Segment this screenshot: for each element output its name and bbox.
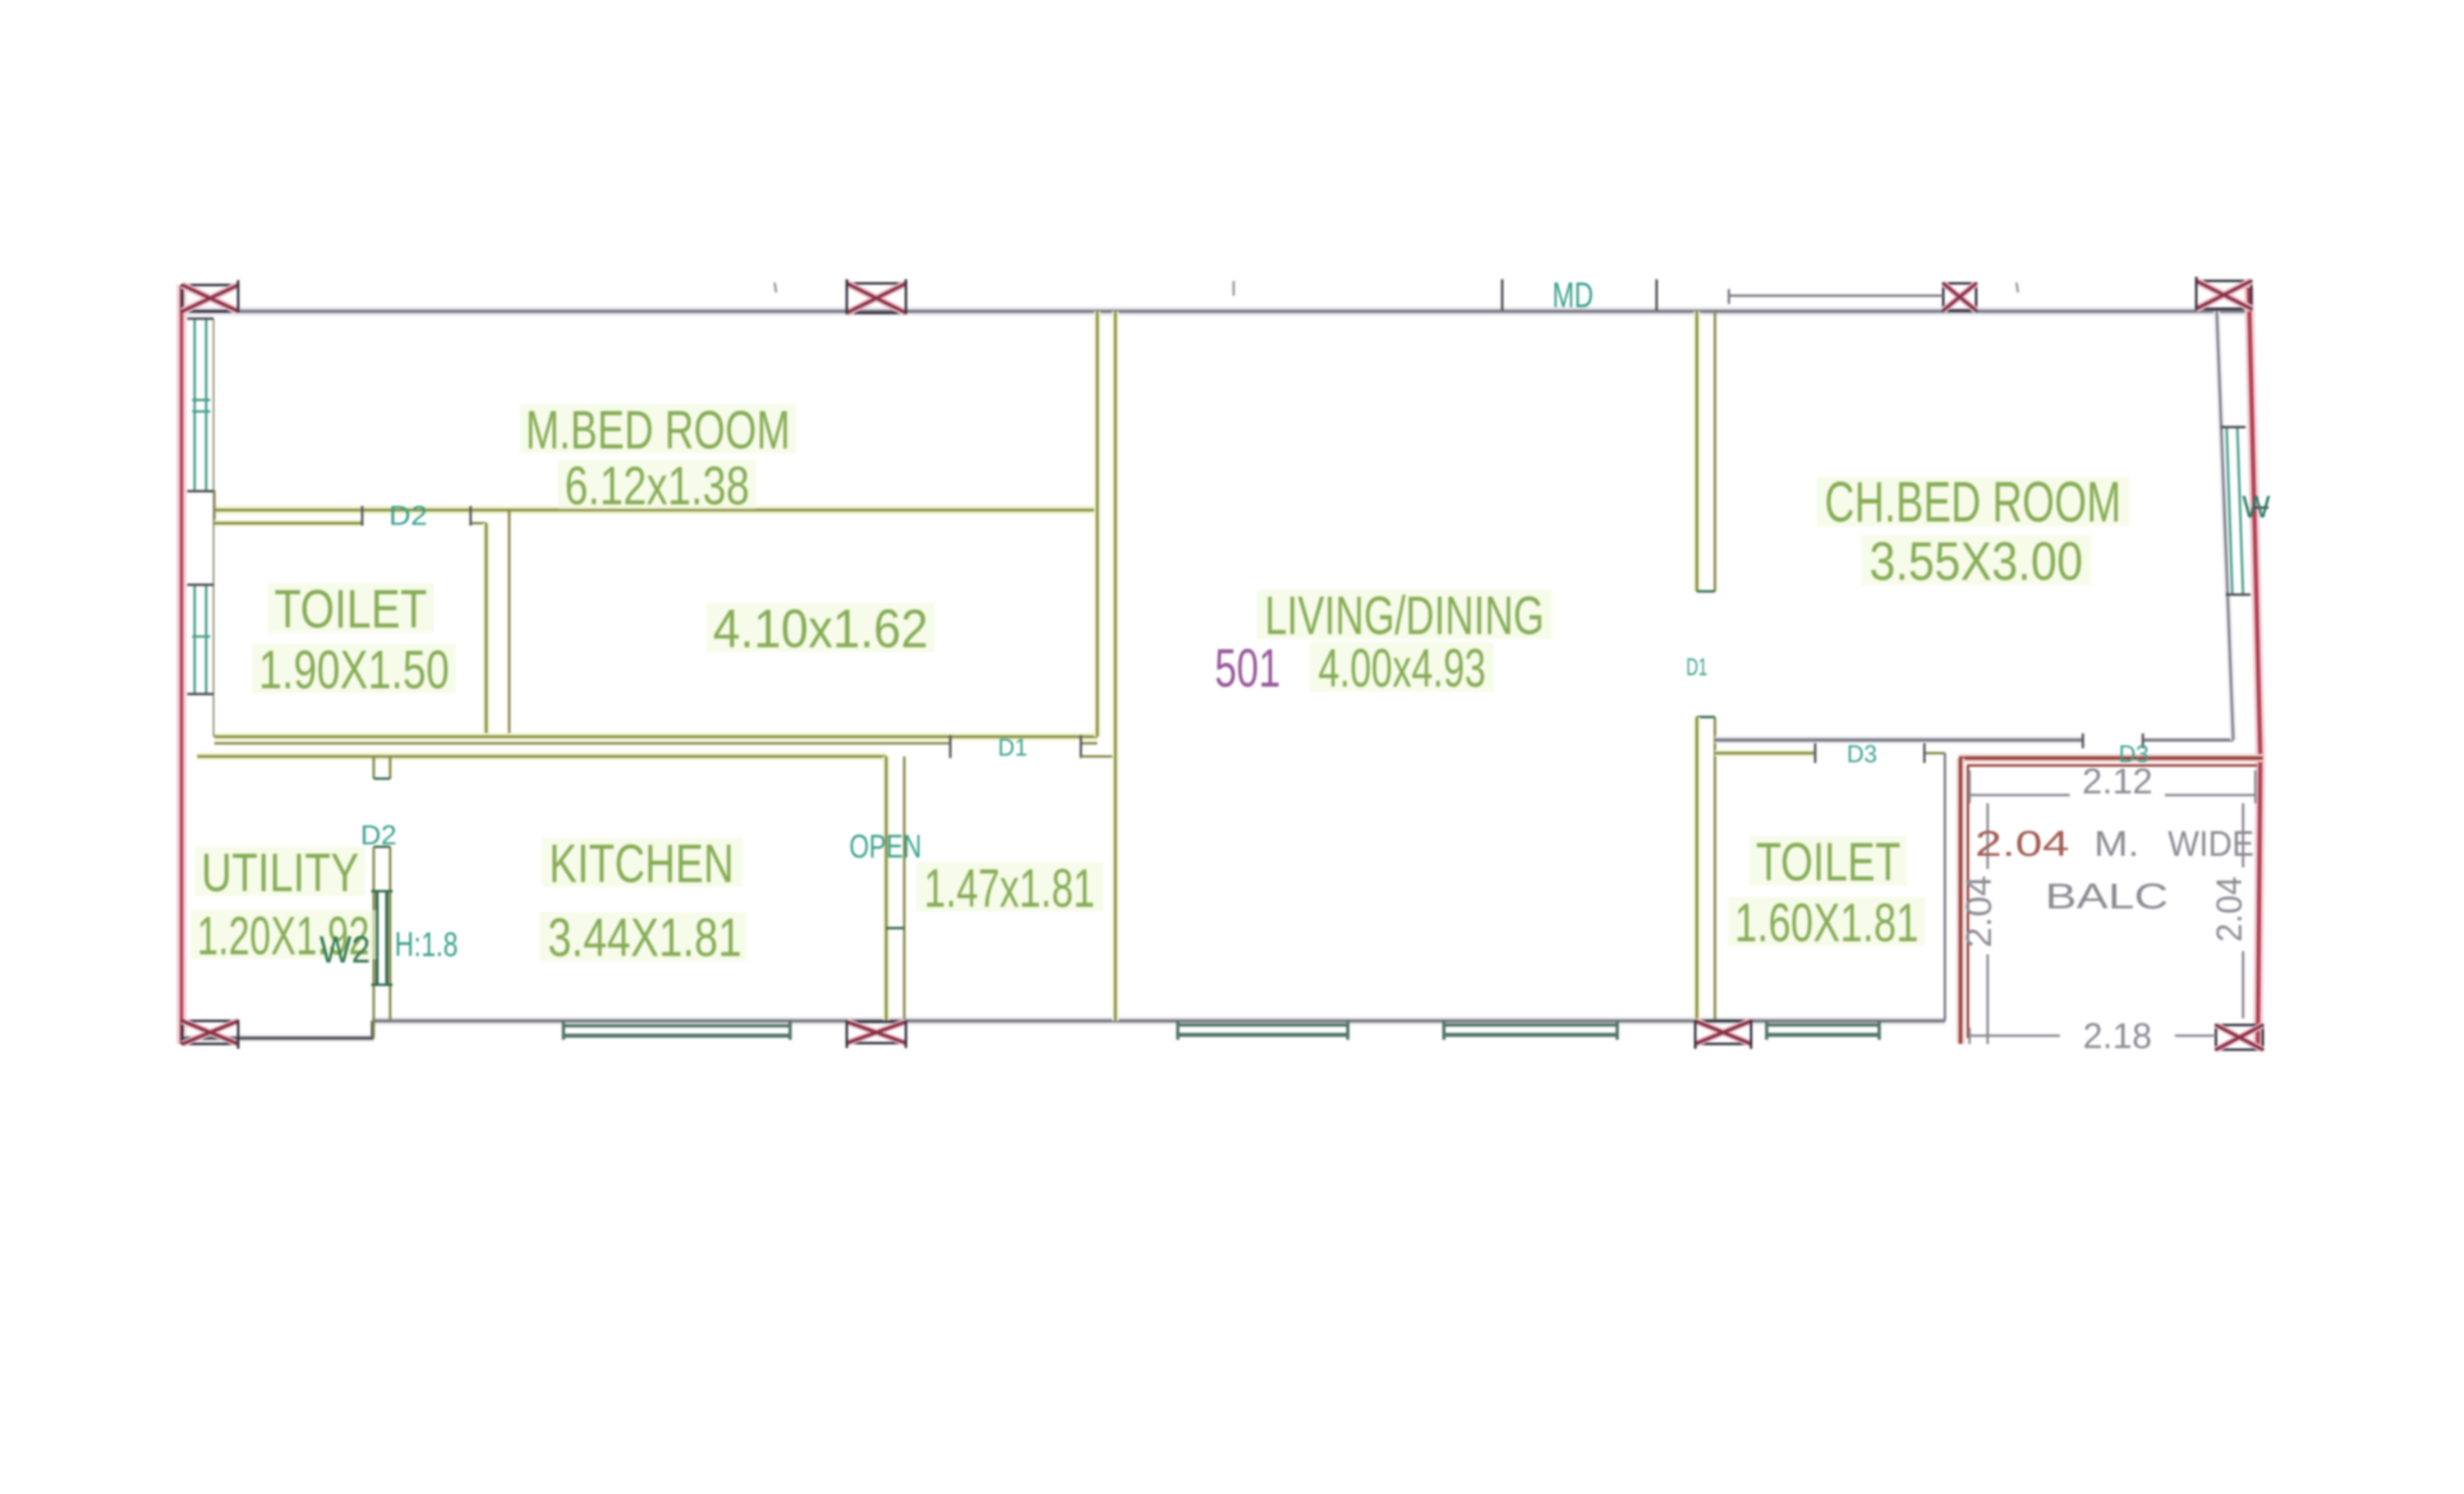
- svg-text:KITCHEN: KITCHEN: [549, 833, 734, 894]
- svg-text:M.BED ROOM: M.BED ROOM: [526, 399, 790, 460]
- svg-text:2.04: 2.04: [1959, 876, 1999, 948]
- svg-text:501: 501: [1215, 637, 1280, 698]
- svg-text:4.00x4.93: 4.00x4.93: [1318, 637, 1486, 698]
- svg-text:2.04: 2.04: [2209, 876, 2250, 942]
- svg-text:TOILET: TOILET: [1756, 831, 1901, 892]
- svg-text:TOILET: TOILET: [274, 578, 427, 639]
- svg-text:OPEN: OPEN: [849, 829, 922, 865]
- svg-text:1.47x1.81: 1.47x1.81: [924, 857, 1095, 918]
- svg-text:MD: MD: [1552, 275, 1593, 315]
- svg-text:3.44X1.81: 3.44X1.81: [548, 907, 742, 968]
- svg-text:H:1.8: H:1.8: [395, 925, 458, 963]
- svg-text:2.04: 2.04: [1975, 824, 2070, 864]
- svg-text:3.55X3.00: 3.55X3.00: [1869, 531, 2083, 591]
- svg-text:D3: D3: [1847, 741, 1878, 768]
- svg-text:W2: W2: [319, 928, 370, 971]
- svg-text:1.90X1.50: 1.90X1.50: [259, 639, 449, 700]
- svg-text:WIDE: WIDE: [2168, 824, 2255, 864]
- svg-text:D1: D1: [998, 734, 1027, 761]
- svg-text:CH.BED ROOM: CH.BED ROOM: [1825, 470, 2122, 534]
- svg-text:M.: M.: [2094, 824, 2140, 864]
- svg-text:4.10x1.62: 4.10x1.62: [713, 598, 928, 659]
- svg-text:BALC: BALC: [2045, 876, 2168, 917]
- svg-text:LIVING/DINING: LIVING/DINING: [1265, 585, 1544, 646]
- svg-text:2.18: 2.18: [2083, 1016, 2152, 1056]
- svg-text:W: W: [2242, 490, 2270, 525]
- svg-text:D1: D1: [1686, 654, 1708, 681]
- svg-text:D2: D2: [361, 820, 397, 850]
- svg-text:6.12x1.38: 6.12x1.38: [565, 455, 750, 516]
- svg-text:1.60X1.81: 1.60X1.81: [1735, 892, 1919, 953]
- svg-text:D2: D2: [389, 500, 428, 531]
- svg-text:2.12: 2.12: [2082, 761, 2153, 802]
- svg-text:UTILITY: UTILITY: [201, 842, 359, 903]
